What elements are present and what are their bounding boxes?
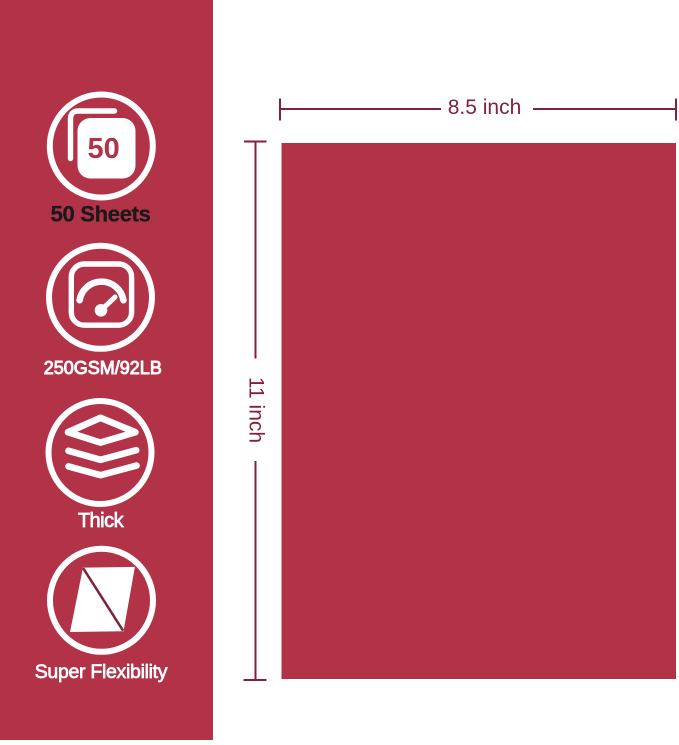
- svg-text:11 inch: 11 inch: [245, 377, 268, 443]
- svg-text:Thick: Thick: [78, 510, 125, 532]
- svg-text:50: 50: [87, 133, 119, 165]
- svg-text:8.5 inch: 8.5 inch: [448, 96, 522, 119]
- svg-text:50 Sheets: 50 Sheets: [51, 202, 151, 227]
- svg-text:Super Flexibility: Super Flexibility: [35, 661, 168, 683]
- svg-text:250GSM/92LB: 250GSM/92LB: [44, 358, 162, 378]
